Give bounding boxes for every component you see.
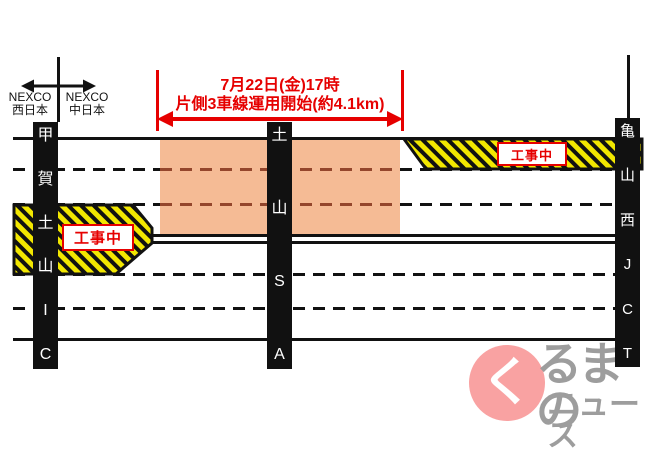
station-bar-tsuchiyama-sa: 土山SA <box>267 122 292 369</box>
logo-text-bottom: ニュース <box>547 389 650 451</box>
station-char: 土 <box>37 216 53 232</box>
station-char: C <box>40 347 52 363</box>
operator-left-block: NEXCO 西日本 <box>2 91 58 117</box>
station-char: C <box>622 302 633 317</box>
logo-symbol: く <box>481 357 533 409</box>
station-bar-koka-tsuchiyama-ic: 甲賀土山IC <box>33 122 58 369</box>
station-char: 山 <box>37 259 53 275</box>
station-bar-kameyama-nishi-jct: 亀山西JCT <box>615 118 640 367</box>
operator-right-region: 中日本 <box>59 104 115 117</box>
station-char: 山 <box>271 201 287 217</box>
station-char: 亀 <box>620 124 635 139</box>
station-char: 西 <box>620 213 635 228</box>
station-char: 賀 <box>37 172 53 188</box>
construction-label-right-text: 工事中 <box>511 145 553 164</box>
station-char: 甲 <box>37 128 53 144</box>
kuruma-news-logo-icon: く <box>469 345 545 421</box>
station-char: A <box>274 347 285 363</box>
station-char: T <box>623 346 632 361</box>
station-char: S <box>274 274 285 290</box>
station-char: J <box>624 257 632 272</box>
operator-right-block: NEXCO 中日本 <box>59 91 115 117</box>
jct-tick-line <box>627 55 630 118</box>
station-char: I <box>43 303 47 319</box>
construction-label-left-text: 工事中 <box>74 227 122 248</box>
annotation-detail-text: 片側3車線運用開始(約4.1km) <box>143 90 417 114</box>
operator-left-region: 西日本 <box>2 104 58 117</box>
station-char: 土 <box>271 128 287 144</box>
station-char: 山 <box>620 168 635 183</box>
construction-label-left: 工事中 <box>62 224 134 251</box>
construction-label-right: 工事中 <box>497 142 567 166</box>
